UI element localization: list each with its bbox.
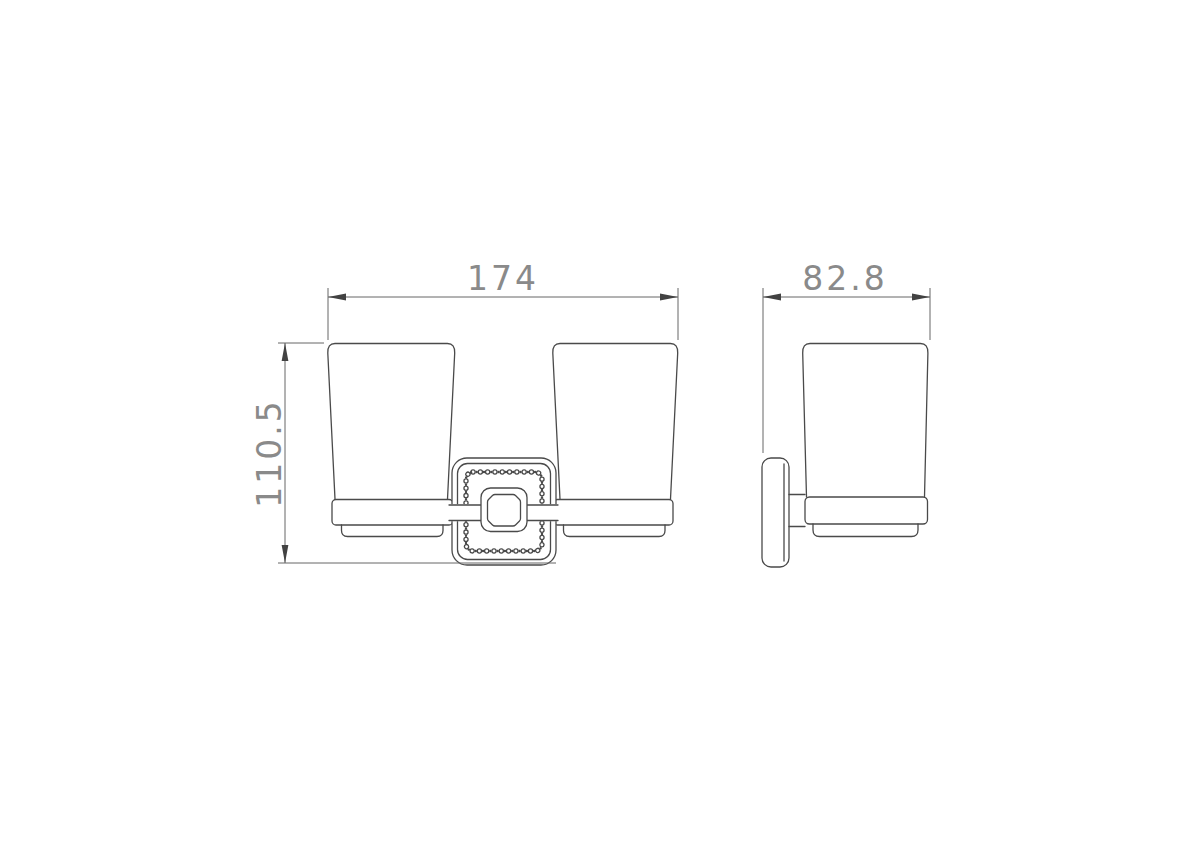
front-view <box>328 344 678 566</box>
technical-drawing: 174 82.8 110.5 <box>0 0 1200 849</box>
dim-side-depth: 82.8 <box>763 259 930 300</box>
dim-label-front-width: 174 <box>467 259 539 298</box>
drawing-sheet: 174 82.8 110.5 <box>0 0 1200 849</box>
side-cup <box>803 344 928 498</box>
dim-height: 110.5 <box>250 343 289 563</box>
front-right-holder-band <box>554 500 674 526</box>
front-right-cup <box>553 344 678 500</box>
dim-front-width-arrow-left <box>328 294 346 301</box>
dim-height-arrow-top <box>282 343 289 361</box>
front-left-holder-band <box>332 500 453 526</box>
side-support-arm <box>789 495 805 527</box>
dim-side-depth-arrow-right <box>912 294 930 301</box>
dim-front-width-arrow-right <box>660 294 678 301</box>
dim-height-arrow-bottom <box>282 545 289 563</box>
side-view <box>762 344 928 568</box>
front-left-holder-lip <box>342 525 444 537</box>
dim-front-width: 174 <box>328 259 678 300</box>
dim-label-side-depth: 82.8 <box>802 259 887 298</box>
front-left-cup <box>328 344 455 500</box>
bracket-center-knob <box>488 495 521 527</box>
side-holder-ring <box>805 497 928 524</box>
side-wall-plate <box>762 458 789 567</box>
dim-label-height: 110.5 <box>250 398 289 507</box>
side-holder-lip <box>813 524 918 537</box>
dim-side-depth-arrow-left <box>763 294 781 301</box>
front-right-holder-lip <box>564 525 666 537</box>
